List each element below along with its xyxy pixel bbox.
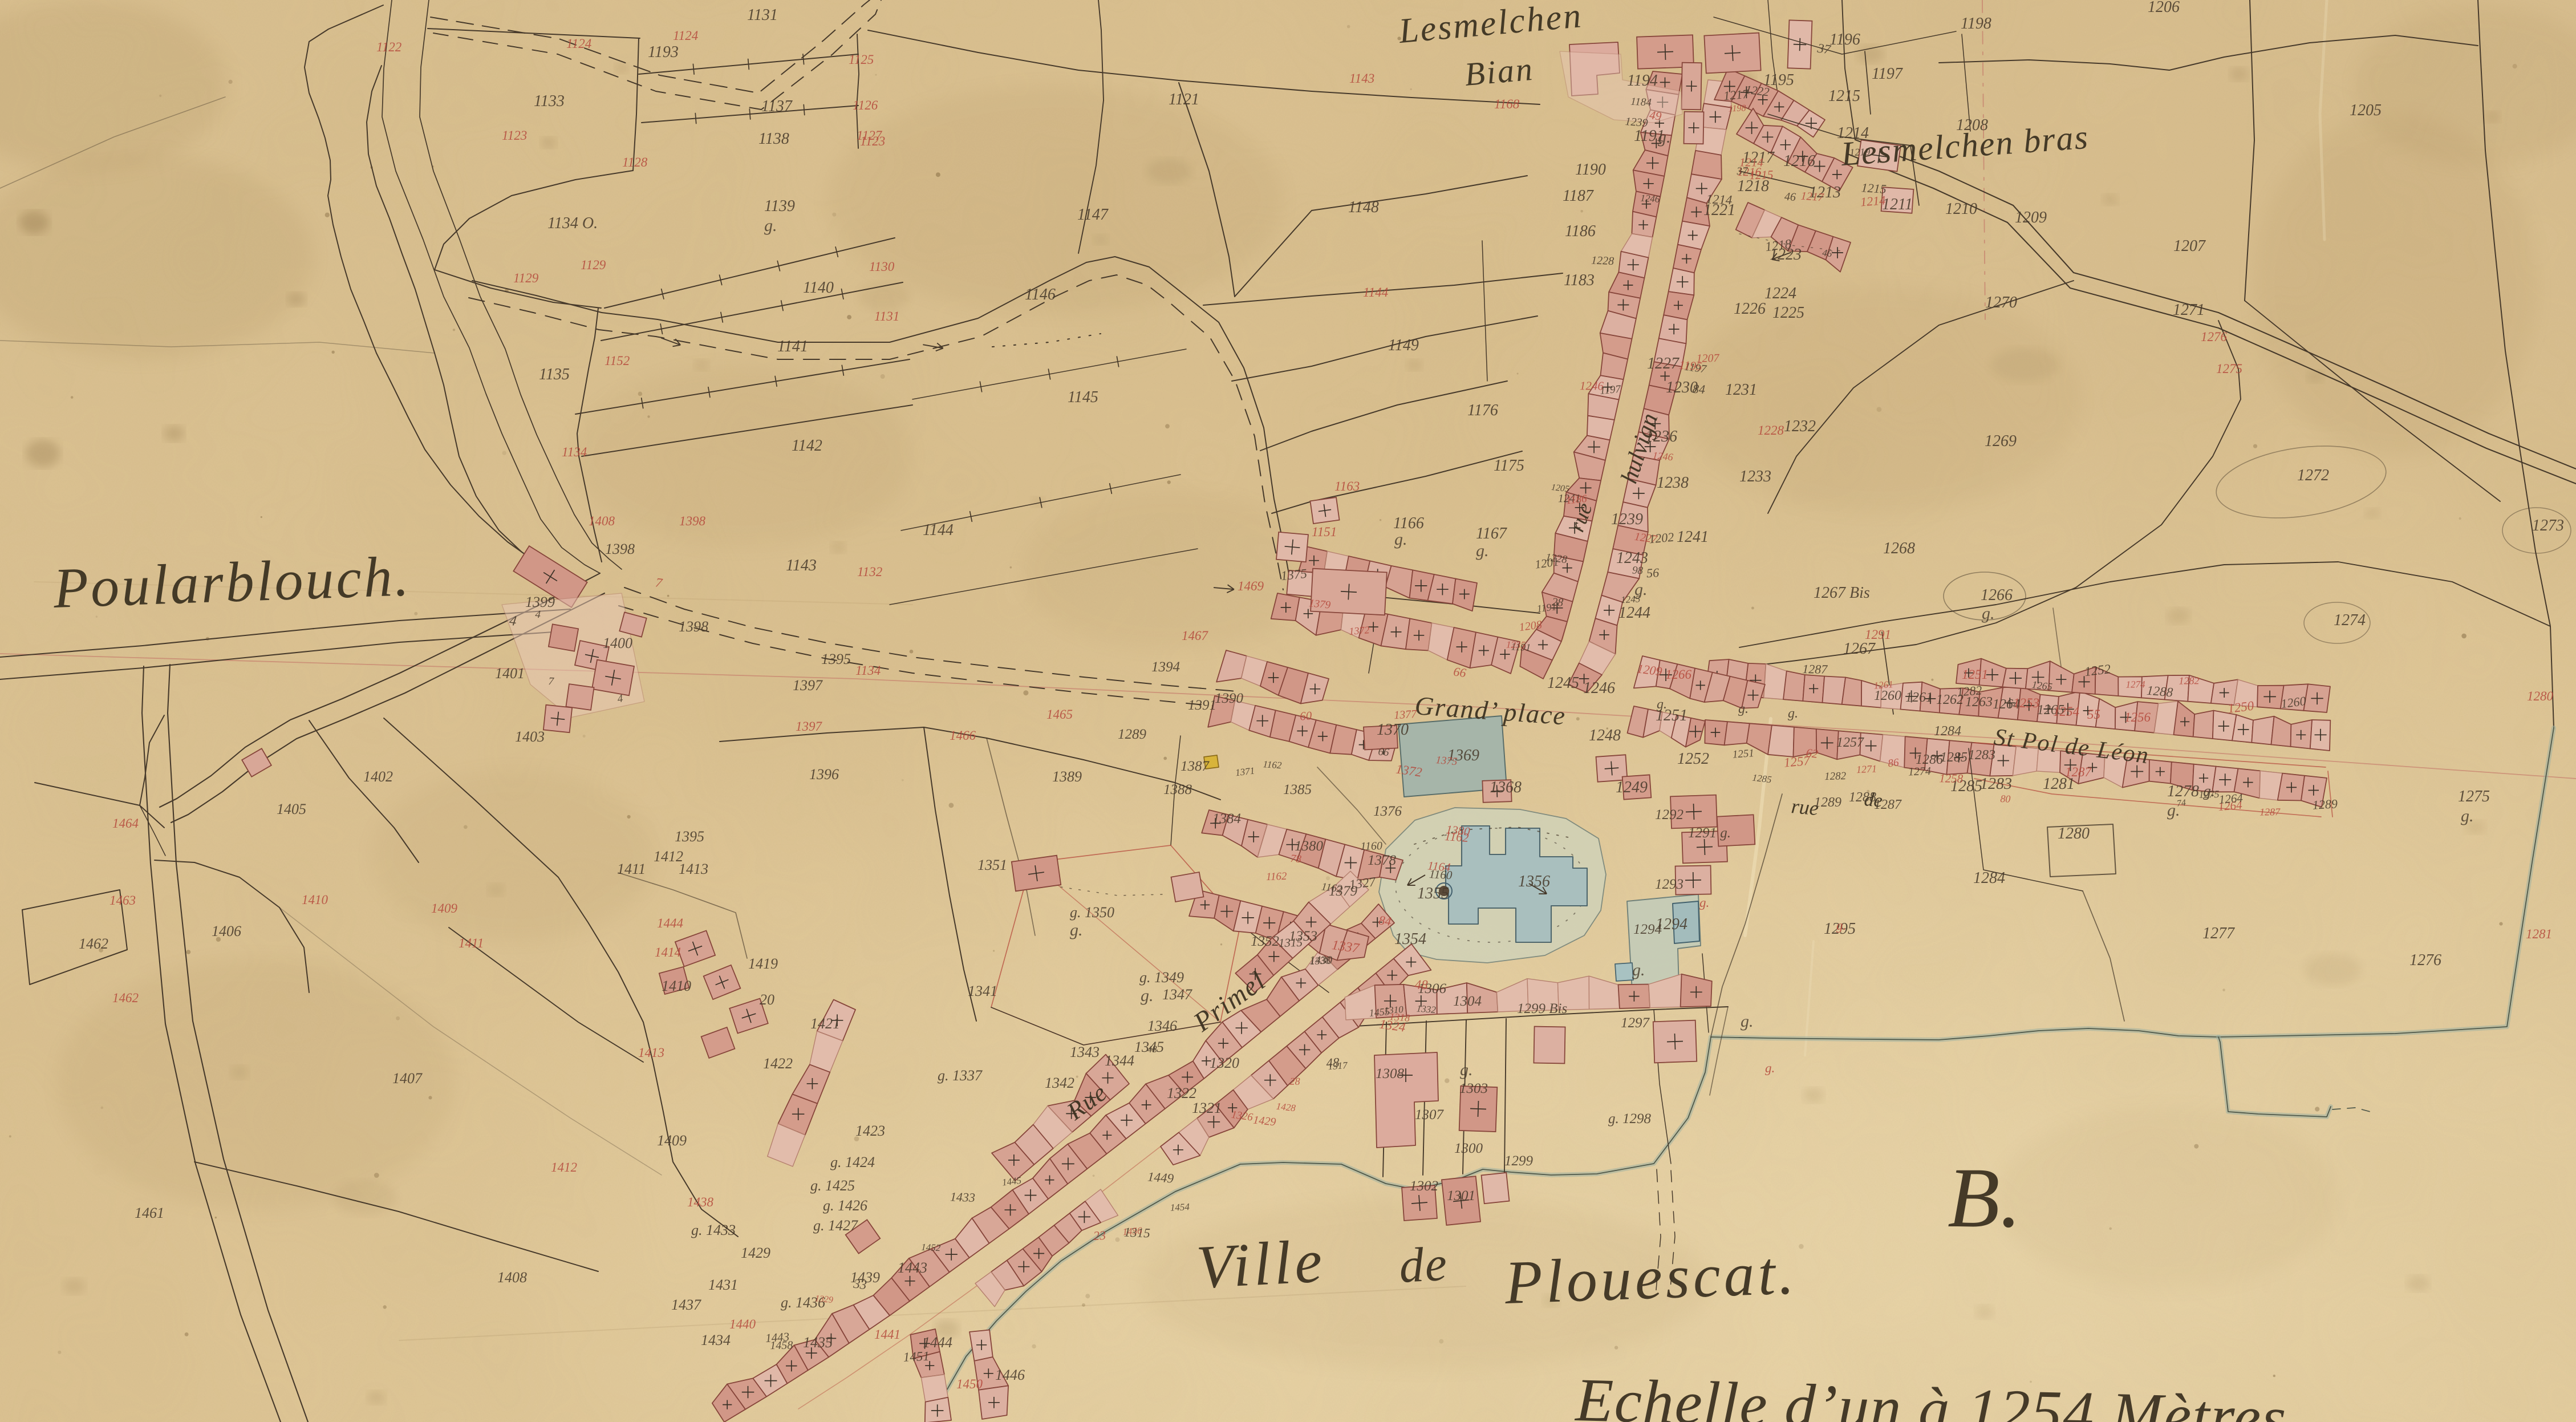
svg-text:1124: 1124: [673, 29, 698, 43]
svg-text:1444: 1444: [657, 916, 683, 930]
svg-text:1300: 1300: [1454, 1141, 1483, 1156]
svg-text:1254: 1254: [2053, 704, 2079, 719]
svg-text:1138: 1138: [758, 130, 789, 148]
svg-text:1129: 1129: [581, 258, 606, 272]
svg-text:84: 84: [1378, 913, 1392, 929]
svg-text:37: 37: [1816, 41, 1832, 57]
svg-text:1146: 1146: [1025, 286, 1056, 303]
svg-text:g.: g.: [764, 216, 777, 235]
svg-text:1198: 1198: [1728, 103, 1746, 114]
svg-text:1149: 1149: [1388, 337, 1419, 354]
svg-text:g. 1349: g. 1349: [1139, 969, 1184, 986]
svg-text:1368: 1368: [1490, 779, 1522, 796]
svg-text:g. 1426: g. 1426: [823, 1197, 867, 1214]
svg-text:1355: 1355: [1417, 885, 1449, 902]
svg-text:23: 23: [1093, 1228, 1106, 1243]
svg-text:1380: 1380: [1295, 838, 1324, 854]
svg-text:Plouescat.: Plouescat.: [1503, 1239, 1799, 1317]
svg-text:1452: 1452: [921, 1242, 941, 1253]
svg-text:1194: 1194: [1627, 72, 1658, 90]
svg-text:1128: 1128: [622, 155, 648, 169]
svg-text:1261: 1261: [1905, 690, 1933, 705]
svg-text:g.: g.: [1394, 530, 1407, 549]
svg-text:1342: 1342: [1045, 1075, 1074, 1091]
svg-text:1134: 1134: [562, 445, 587, 459]
svg-text:1268: 1268: [1883, 540, 1915, 557]
svg-text:98: 98: [1632, 564, 1644, 577]
svg-text:1227: 1227: [1647, 355, 1680, 372]
svg-text:1302: 1302: [1410, 1178, 1438, 1194]
svg-text:1133: 1133: [534, 92, 565, 110]
svg-text:1394: 1394: [1151, 659, 1180, 675]
svg-text:1176: 1176: [1467, 402, 1498, 419]
svg-text:1303: 1303: [1459, 1081, 1488, 1096]
svg-text:1412: 1412: [551, 1160, 577, 1174]
svg-text:1231: 1231: [1725, 381, 1757, 399]
svg-text:1235: 1235: [1506, 639, 1526, 651]
svg-text:1454: 1454: [1170, 1201, 1190, 1213]
svg-text:1265: 1265: [2031, 679, 2053, 692]
svg-text:1228: 1228: [1758, 423, 1784, 437]
svg-text:g.: g.: [1658, 128, 1671, 147]
svg-text:1376: 1376: [1373, 804, 1402, 819]
svg-text:1462: 1462: [79, 935, 108, 952]
svg-text:80: 80: [2000, 793, 2011, 805]
svg-text:1274: 1274: [2125, 679, 2145, 690]
svg-text:1275: 1275: [2198, 788, 2220, 800]
svg-text:1214: 1214: [1706, 192, 1733, 207]
svg-text:1238: 1238: [1657, 474, 1689, 492]
svg-text:1423: 1423: [855, 1123, 885, 1139]
svg-text:28: 28: [1290, 1076, 1300, 1087]
svg-text:Poularblouch.: Poularblouch.: [52, 544, 412, 620]
svg-text:1440: 1440: [729, 1317, 756, 1331]
svg-text:1246: 1246: [1652, 449, 1674, 463]
svg-text:1245: 1245: [1547, 674, 1579, 692]
svg-text:1164: 1164: [1427, 858, 1451, 874]
svg-text:1147: 1147: [1077, 206, 1109, 224]
svg-text:1123: 1123: [502, 128, 527, 143]
svg-text:1414: 1414: [655, 945, 681, 959]
svg-text:1299 Bis: 1299 Bis: [1517, 1001, 1567, 1016]
svg-text:1276: 1276: [2409, 951, 2441, 969]
svg-text:1239: 1239: [1625, 115, 1649, 129]
svg-text:1299: 1299: [1504, 1153, 1534, 1169]
svg-text:1287: 1287: [1874, 797, 1902, 812]
svg-text:1122: 1122: [376, 40, 401, 54]
svg-text:1409: 1409: [431, 901, 458, 915]
svg-text:1354: 1354: [1394, 930, 1426, 948]
svg-text:1405: 1405: [277, 801, 306, 817]
svg-text:1205: 1205: [2350, 102, 2382, 119]
svg-text:1196: 1196: [1829, 31, 1860, 48]
svg-text:1252: 1252: [2084, 662, 2112, 679]
svg-text:78: 78: [1290, 853, 1302, 866]
svg-text:4: 4: [535, 609, 541, 621]
svg-text:1346: 1346: [1147, 1018, 1177, 1034]
svg-text:1214: 1214: [1837, 124, 1869, 142]
svg-text:49: 49: [1649, 108, 1663, 123]
svg-text:1144: 1144: [1363, 285, 1388, 299]
svg-text:g. 1433: g. 1433: [691, 1222, 736, 1238]
svg-text:1274: 1274: [2334, 611, 2366, 629]
svg-text:1134 O.: 1134 O.: [547, 214, 598, 232]
svg-text:1451: 1451: [903, 1349, 930, 1364]
svg-text:1239: 1239: [1611, 511, 1643, 528]
svg-text:1216: 1216: [1783, 152, 1815, 170]
svg-text:1211: 1211: [1882, 196, 1913, 213]
svg-text:1131: 1131: [874, 309, 899, 323]
svg-text:1248: 1248: [1589, 727, 1621, 744]
svg-text:1258: 1258: [1939, 771, 1964, 785]
svg-text:1433: 1433: [950, 1189, 976, 1205]
svg-text:1207: 1207: [2173, 237, 2206, 255]
svg-text:1271: 1271: [1856, 763, 1877, 775]
svg-text:1321: 1321: [1192, 1100, 1222, 1116]
svg-text:1287: 1287: [1802, 662, 1828, 676]
svg-text:1197: 1197: [1600, 383, 1622, 397]
svg-text:1400: 1400: [603, 635, 632, 651]
svg-text:1129: 1129: [513, 271, 539, 285]
svg-text:55: 55: [2087, 707, 2100, 722]
svg-text:1465: 1465: [1046, 707, 1073, 722]
svg-text:1372: 1372: [1349, 624, 1370, 637]
svg-text:1428: 1428: [1276, 1101, 1296, 1114]
svg-text:1410: 1410: [302, 893, 328, 907]
svg-text:20: 20: [760, 991, 774, 1008]
svg-text:1449: 1449: [1147, 1169, 1174, 1185]
svg-text:1437: 1437: [671, 1297, 701, 1313]
svg-text:1124: 1124: [566, 37, 591, 51]
svg-text:g.: g.: [1699, 896, 1709, 910]
svg-text:1395: 1395: [675, 828, 704, 845]
svg-text:46: 46: [1822, 247, 1833, 259]
svg-text:1467: 1467: [1182, 629, 1209, 643]
svg-text:1142: 1142: [792, 437, 822, 455]
svg-text:1257: 1257: [1836, 735, 1864, 750]
svg-text:1209: 1209: [2015, 209, 2047, 226]
svg-text:1225: 1225: [1772, 304, 1804, 322]
svg-text:1287: 1287: [2259, 806, 2281, 817]
svg-text:1160: 1160: [1360, 840, 1382, 853]
svg-text:1163: 1163: [1334, 479, 1360, 493]
svg-text:1307: 1307: [1415, 1107, 1445, 1123]
svg-text:1289: 1289: [1118, 727, 1147, 742]
svg-text:1131: 1131: [747, 6, 778, 24]
svg-text:1261: 1261: [1873, 679, 1893, 691]
svg-text:1270: 1270: [1985, 294, 2017, 311]
svg-text:1406: 1406: [212, 923, 241, 939]
svg-text:g.: g.: [2461, 807, 2474, 825]
svg-text:1162: 1162: [1321, 881, 1343, 895]
svg-text:g. 1350: g. 1350: [1070, 904, 1114, 921]
svg-text:1273: 1273: [2532, 517, 2564, 534]
svg-text:1396: 1396: [809, 766, 839, 783]
svg-text:66: 66: [1453, 664, 1467, 680]
svg-text:g.: g.: [1836, 918, 1846, 933]
svg-text:1139: 1139: [764, 197, 795, 215]
svg-text:37: 37: [1736, 165, 1749, 177]
svg-text:1408: 1408: [589, 514, 615, 528]
svg-text:1409: 1409: [657, 1132, 687, 1149]
svg-text:1198: 1198: [1961, 15, 1991, 33]
svg-text:1315: 1315: [1279, 935, 1303, 950]
svg-text:1450: 1450: [956, 1377, 983, 1391]
svg-text:1464: 1464: [112, 816, 139, 830]
svg-text:1277: 1277: [2202, 925, 2235, 942]
svg-text:1148: 1148: [1348, 198, 1379, 216]
svg-text:1162: 1162: [1444, 829, 1469, 845]
svg-text:1219: 1219: [1849, 146, 1871, 159]
svg-text:1143: 1143: [1349, 71, 1374, 86]
svg-text:1385: 1385: [1283, 782, 1312, 797]
svg-text:1285: 1285: [1940, 750, 1968, 765]
svg-text:1236: 1236: [1645, 428, 1677, 445]
svg-text:g.: g.: [1657, 697, 1667, 712]
svg-text:1271: 1271: [2173, 301, 2205, 319]
svg-text:1183: 1183: [1564, 272, 1595, 289]
svg-text:de: de: [1398, 1236, 1449, 1293]
svg-text:1375: 1375: [1435, 754, 1458, 768]
svg-text:1168: 1168: [1494, 97, 1520, 111]
svg-text:1289: 1289: [2312, 796, 2338, 812]
svg-text:1137: 1137: [761, 98, 793, 115]
svg-text:1249: 1249: [1616, 779, 1648, 796]
svg-text:1228: 1228: [1591, 254, 1614, 268]
svg-text:1251: 1251: [1962, 667, 1988, 682]
svg-text:1391: 1391: [1188, 698, 1216, 713]
svg-text:1269: 1269: [1985, 432, 2017, 450]
svg-text:1375: 1375: [1280, 566, 1308, 583]
svg-text:1206: 1206: [2148, 0, 2180, 16]
svg-text:1413: 1413: [638, 1046, 664, 1060]
svg-text:1293: 1293: [1655, 877, 1683, 892]
svg-text:g. 1337: g. 1337: [938, 1067, 983, 1084]
svg-text:1123: 1123: [860, 134, 885, 148]
svg-text:48: 48: [1147, 1044, 1158, 1055]
svg-text:1275: 1275: [2458, 788, 2490, 805]
svg-text:1217: 1217: [1800, 190, 1825, 204]
svg-text:1162: 1162: [1263, 759, 1282, 771]
svg-text:1195: 1195: [1678, 358, 1702, 374]
svg-text:1202: 1202: [1648, 530, 1674, 546]
svg-text:1458: 1458: [770, 1339, 793, 1352]
svg-text:1280: 1280: [2058, 825, 2090, 842]
svg-text:1397: 1397: [793, 677, 823, 694]
svg-text:1143: 1143: [786, 557, 817, 574]
svg-text:1132: 1132: [857, 565, 882, 579]
svg-text:g.: g.: [1141, 986, 1154, 1005]
svg-text:1205: 1205: [1551, 483, 1570, 494]
svg-text:g.: g.: [1632, 961, 1645, 979]
svg-text:g.: g.: [1476, 541, 1489, 560]
svg-text:1310: 1310: [1384, 1004, 1404, 1016]
svg-text:1344: 1344: [1105, 1052, 1134, 1069]
svg-text:g.: g.: [1738, 702, 1749, 716]
svg-text:1441: 1441: [874, 1327, 900, 1342]
svg-text:1281: 1281: [2526, 927, 2552, 941]
svg-text:46: 46: [1784, 191, 1796, 204]
svg-text:1292: 1292: [1655, 807, 1683, 823]
svg-text:Ville: Ville: [1195, 1227, 1327, 1302]
svg-text:g.: g.: [1741, 1012, 1754, 1031]
svg-text:1294: 1294: [1633, 922, 1662, 937]
svg-text:1421: 1421: [810, 1015, 840, 1032]
svg-text:1390: 1390: [1215, 691, 1244, 706]
svg-text:1284: 1284: [1934, 724, 1961, 739]
svg-text:1304: 1304: [1453, 994, 1482, 1009]
svg-text:1134: 1134: [855, 663, 881, 678]
svg-text:1332: 1332: [1416, 1003, 1437, 1015]
svg-text:1341: 1341: [968, 983, 997, 999]
svg-text:1193: 1193: [648, 43, 679, 61]
svg-text:1399: 1399: [525, 594, 555, 610]
svg-text:1272: 1272: [2297, 467, 2329, 484]
svg-text:1389: 1389: [1052, 768, 1082, 785]
svg-text:1224: 1224: [1764, 285, 1796, 302]
svg-text:1308: 1308: [1376, 1066, 1405, 1081]
svg-text:1419: 1419: [748, 955, 778, 972]
svg-text:1264: 1264: [2218, 791, 2244, 807]
svg-text:g.: g.: [1982, 604, 1995, 623]
svg-text:1167: 1167: [1476, 525, 1507, 542]
svg-text:1274: 1274: [1908, 765, 1932, 778]
svg-text:1130: 1130: [869, 260, 895, 274]
svg-text:1395: 1395: [821, 651, 851, 667]
svg-text:1434: 1434: [701, 1332, 731, 1348]
svg-text:1431: 1431: [708, 1277, 738, 1293]
svg-text:g.: g.: [1070, 921, 1083, 939]
svg-text:1144: 1144: [923, 521, 954, 539]
svg-text:1401: 1401: [495, 665, 525, 682]
svg-text:1291 g.: 1291 g.: [1688, 825, 1731, 841]
svg-text:1280: 1280: [2527, 689, 2554, 703]
svg-text:1446: 1446: [995, 1367, 1025, 1383]
svg-text:1291: 1291: [1865, 627, 1891, 642]
svg-text:1125: 1125: [849, 52, 874, 67]
svg-text:1370: 1370: [1377, 721, 1409, 739]
svg-text:1356: 1356: [1518, 873, 1550, 890]
svg-text:1282: 1282: [1824, 770, 1847, 783]
svg-text:1343: 1343: [1070, 1044, 1100, 1060]
svg-text:1388: 1388: [1163, 782, 1192, 797]
svg-text:1121: 1121: [1169, 91, 1199, 108]
svg-text:1408: 1408: [497, 1269, 527, 1286]
svg-text:1241: 1241: [1677, 528, 1709, 546]
svg-text:86: 86: [1887, 756, 1900, 769]
svg-text:1226: 1226: [1734, 300, 1766, 318]
svg-text:1282: 1282: [1956, 683, 1982, 699]
svg-text:1407: 1407: [392, 1070, 423, 1087]
svg-text:1435: 1435: [803, 1334, 833, 1351]
svg-text:1175: 1175: [1494, 457, 1524, 475]
svg-text:1398: 1398: [605, 541, 635, 557]
svg-text:1384: 1384: [1212, 811, 1241, 827]
svg-text:1244: 1244: [1618, 604, 1650, 622]
svg-text:1352: 1352: [1251, 934, 1279, 949]
svg-text:1320: 1320: [1210, 1055, 1239, 1071]
svg-text:60: 60: [1300, 708, 1313, 723]
svg-text:1126: 1126: [853, 98, 878, 112]
svg-text:1245: 1245: [1621, 593, 1641, 605]
svg-text:1215: 1215: [1861, 180, 1887, 196]
svg-text:1371: 1371: [1235, 765, 1255, 778]
svg-text:1232: 1232: [1784, 418, 1816, 435]
svg-text:Bian: Bian: [1463, 50, 1535, 93]
svg-text:1186: 1186: [1565, 222, 1596, 240]
svg-text:1397: 1397: [796, 719, 823, 734]
svg-text:1288: 1288: [1849, 790, 1876, 805]
svg-text:1322: 1322: [1167, 1085, 1196, 1101]
svg-text:1444: 1444: [923, 1334, 952, 1351]
svg-text:1233: 1233: [1739, 468, 1771, 485]
svg-text:1378: 1378: [1368, 853, 1397, 868]
svg-text:1288: 1288: [2146, 683, 2173, 700]
svg-text:1301: 1301: [1447, 1188, 1475, 1204]
svg-text:1145: 1145: [1068, 388, 1098, 406]
svg-text:1151: 1151: [1312, 525, 1337, 539]
svg-text:1253: 1253: [2013, 696, 2039, 710]
svg-text:1162: 1162: [1266, 870, 1288, 883]
svg-text:g.: g.: [1788, 706, 1798, 721]
svg-text:1411: 1411: [459, 936, 484, 950]
svg-text:1256: 1256: [2124, 710, 2151, 724]
svg-text:1461: 1461: [135, 1205, 164, 1221]
svg-text:1275: 1275: [2216, 362, 2242, 376]
svg-text:1463: 1463: [109, 893, 136, 908]
svg-text:1379: 1379: [1308, 597, 1331, 611]
svg-text:1398: 1398: [679, 514, 706, 528]
svg-text:g. 1425: g. 1425: [810, 1177, 855, 1194]
svg-text:1186: 1186: [1565, 493, 1588, 507]
svg-text:1267: 1267: [1843, 640, 1876, 658]
svg-text:1266: 1266: [1665, 667, 1692, 682]
svg-text:1197: 1197: [1872, 65, 1903, 83]
svg-text:74: 74: [2176, 798, 2186, 809]
svg-text:1190: 1190: [1575, 161, 1606, 179]
svg-text:1289: 1289: [1814, 795, 1841, 810]
svg-text:g. 1298: g. 1298: [1608, 1111, 1652, 1127]
svg-text:1276: 1276: [2201, 330, 2228, 344]
svg-text:48: 48: [1414, 978, 1428, 992]
svg-text:1429: 1429: [741, 1245, 770, 1261]
svg-text:g. 1424: g. 1424: [830, 1154, 875, 1170]
svg-text:1462: 1462: [112, 991, 139, 1005]
svg-text:1347: 1347: [1162, 986, 1192, 1003]
svg-text:1456: 1456: [1122, 1225, 1143, 1238]
svg-text:1469: 1469: [1238, 579, 1264, 593]
svg-text:1410: 1410: [662, 978, 691, 994]
svg-text:1351: 1351: [977, 857, 1007, 873]
svg-text:1184: 1184: [1630, 96, 1652, 109]
svg-text:1287: 1287: [2065, 765, 2092, 779]
svg-text:66: 66: [1378, 746, 1390, 759]
svg-text:1140: 1140: [803, 279, 834, 297]
svg-text:1297: 1297: [1621, 1015, 1650, 1031]
svg-text:g.: g.: [1765, 1061, 1775, 1075]
svg-text:g.: g.: [1460, 1060, 1473, 1079]
svg-text:1329: 1329: [814, 1294, 833, 1305]
svg-text:1398: 1398: [679, 618, 708, 635]
svg-text:1246: 1246: [1640, 193, 1661, 205]
svg-text:1141: 1141: [777, 338, 808, 355]
svg-text:84: 84: [1692, 382, 1705, 396]
svg-text:1135: 1135: [539, 366, 570, 383]
svg-text:1217: 1217: [1723, 87, 1750, 103]
svg-text:1387: 1387: [1181, 759, 1210, 774]
svg-text:1187: 1187: [1563, 187, 1594, 205]
svg-text:1266: 1266: [1981, 586, 2013, 604]
